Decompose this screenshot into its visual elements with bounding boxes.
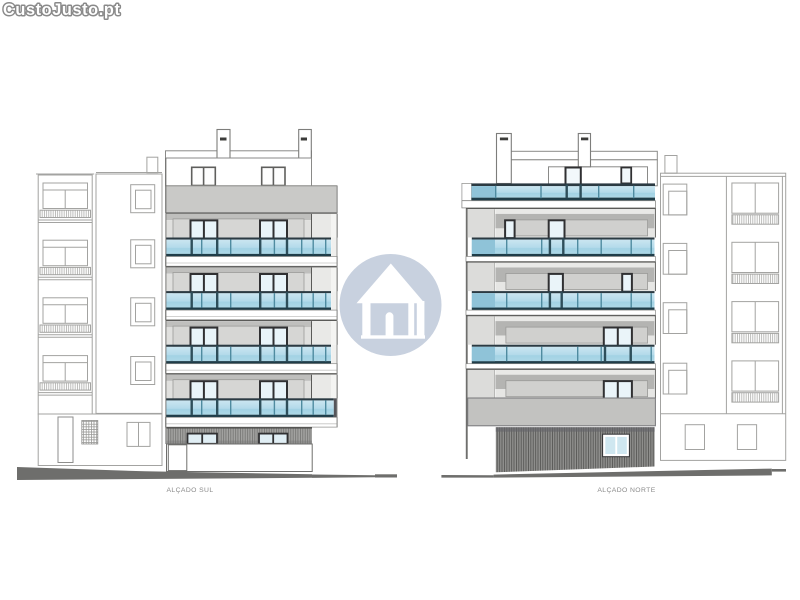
svg-text:CustoJusto.pt: CustoJusto.pt bbox=[3, 1, 121, 19]
svg-text:ALÇADO NORTE: ALÇADO NORTE bbox=[597, 487, 655, 494]
svg-text:ALÇADO SUL: ALÇADO SUL bbox=[166, 487, 213, 494]
